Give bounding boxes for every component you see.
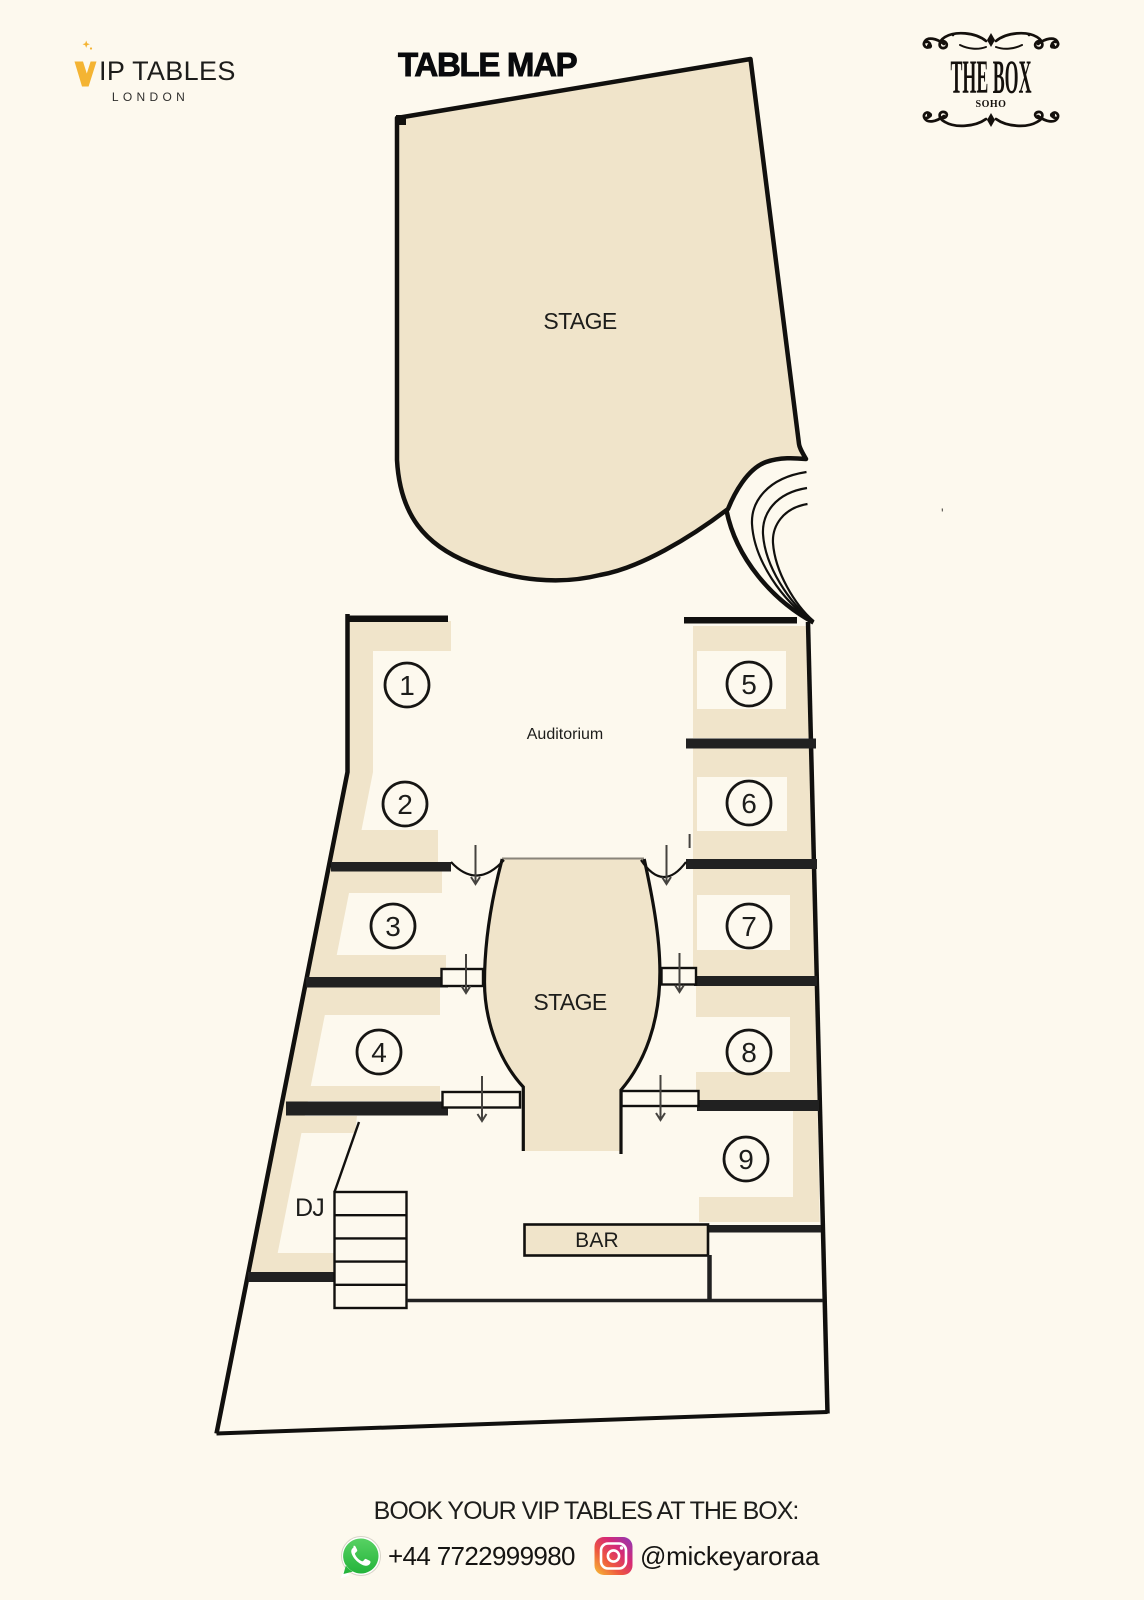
svg-text:IP TABLES: IP TABLES (99, 56, 236, 86)
svg-text:SOHO: SOHO (976, 99, 1007, 110)
svg-text:7: 7 (741, 911, 757, 942)
svg-text:9: 9 (738, 1144, 754, 1175)
svg-text:3: 3 (385, 911, 401, 942)
svg-text:STAGE: STAGE (543, 308, 617, 334)
svg-text:2: 2 (397, 789, 413, 820)
svg-text:DJ: DJ (295, 1194, 324, 1222)
svg-text:STAGE: STAGE (533, 989, 607, 1015)
svg-text:THE BOX: THE BOX (951, 51, 1032, 104)
svg-text:+44 7722999980: +44 7722999980 (388, 1541, 575, 1571)
svg-text:8: 8 (741, 1037, 757, 1068)
svg-text:BAR: BAR (575, 1229, 619, 1252)
svg-text:LONDON: LONDON (112, 90, 189, 104)
svg-text:@mickeyaroraa: @mickeyaroraa (640, 1541, 820, 1571)
svg-text:Auditorium: Auditorium (527, 726, 603, 743)
svg-text:6: 6 (741, 788, 757, 819)
svg-text:1: 1 (399, 670, 415, 701)
svg-text:TABLE MAP: TABLE MAP (398, 46, 577, 83)
svg-text:5: 5 (741, 669, 757, 700)
svg-text:BOOK YOUR VIP TABLES AT THE BO: BOOK YOUR VIP TABLES AT THE BOX: (374, 1497, 799, 1525)
svg-text:': ' (941, 505, 944, 521)
svg-text:4: 4 (371, 1037, 387, 1068)
